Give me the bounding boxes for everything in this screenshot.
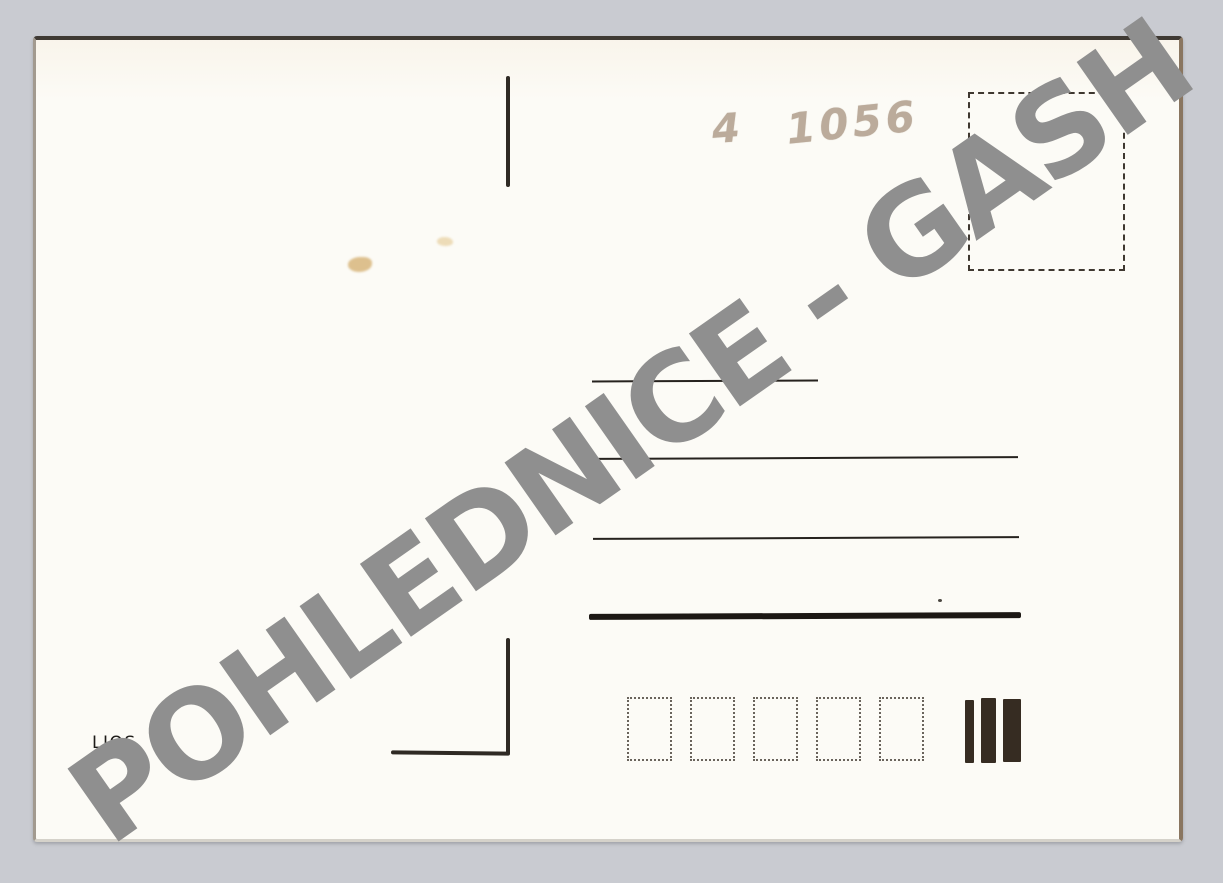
postal-code-box <box>753 697 798 761</box>
ink-speck <box>938 599 942 602</box>
stamp-box <box>968 92 1125 271</box>
postal-code-box <box>627 697 672 761</box>
sorting-bar <box>981 698 996 763</box>
divider-line-top <box>506 76 510 187</box>
postal-code-box <box>816 697 861 761</box>
paper-stain <box>348 257 372 272</box>
postcard-scan: 4 1056 LIOS POHLEDNICE - GASH <box>0 0 1223 883</box>
pencil-note-number: 4 <box>710 105 745 153</box>
postal-code-box <box>879 697 924 761</box>
paper-stain <box>437 237 453 246</box>
pencil-note-number: 1056 <box>784 91 921 154</box>
sorting-bar <box>1003 699 1021 762</box>
publisher-mark: LIOS <box>92 733 137 753</box>
postal-code-box <box>690 697 735 761</box>
divider-corner-vertical <box>506 638 510 755</box>
sorting-bar <box>965 700 974 763</box>
